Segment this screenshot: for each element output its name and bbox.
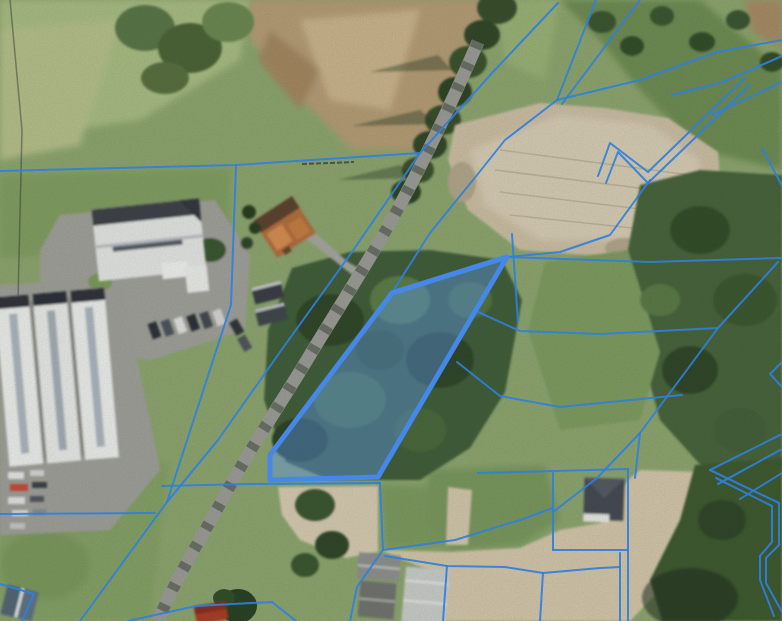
parcel-boundary-line: [0, 513, 155, 514]
map-viewport[interactable]: [0, 0, 782, 621]
aerial-map-canvas[interactable]: [0, 0, 782, 621]
